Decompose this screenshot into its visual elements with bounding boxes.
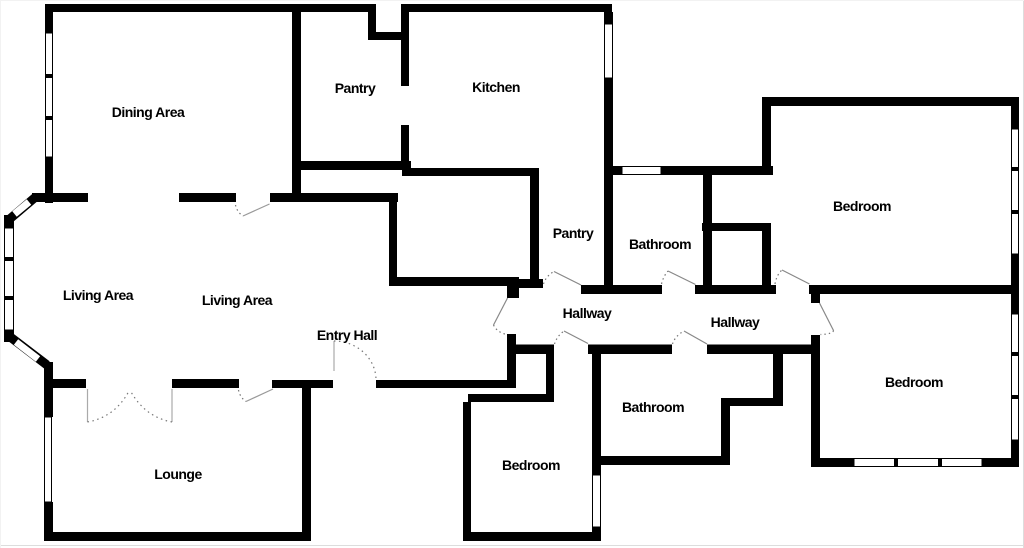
svg-text:Lounge: Lounge <box>154 466 202 482</box>
svg-text:Hallway: Hallway <box>711 314 760 330</box>
svg-text:Dining Area: Dining Area <box>112 104 185 120</box>
svg-text:Pantry: Pantry <box>553 225 594 241</box>
svg-text:Kitchen: Kitchen <box>472 79 520 95</box>
svg-text:Living Area: Living Area <box>63 287 134 303</box>
svg-text:Hallway: Hallway <box>563 305 612 321</box>
svg-text:Bedroom: Bedroom <box>833 198 891 214</box>
svg-text:Pantry: Pantry <box>335 80 376 96</box>
svg-text:Bathroom: Bathroom <box>622 399 684 415</box>
svg-text:Bedroom: Bedroom <box>502 457 560 473</box>
svg-text:Bathroom: Bathroom <box>629 236 691 252</box>
svg-text:Entry Hall: Entry Hall <box>317 327 377 343</box>
svg-text:Living Area: Living Area <box>202 292 273 308</box>
svg-text:Bedroom: Bedroom <box>885 374 943 390</box>
